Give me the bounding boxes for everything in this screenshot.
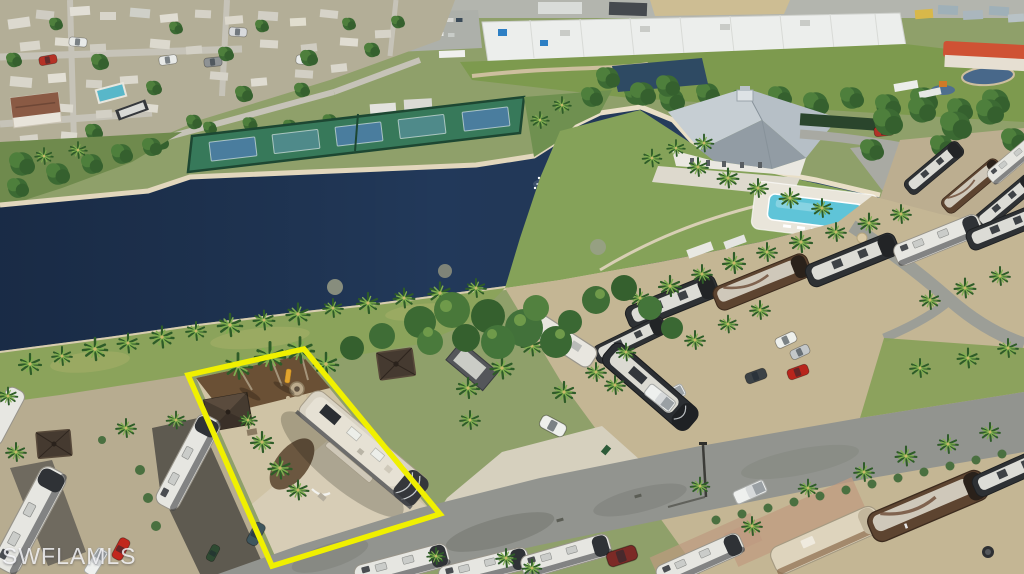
house xyxy=(989,6,1010,16)
car xyxy=(229,27,248,37)
car xyxy=(69,37,88,48)
mobile-home xyxy=(290,18,306,27)
mobile-home xyxy=(100,12,116,20)
site-gazebo xyxy=(36,430,72,459)
mobile-home xyxy=(186,45,203,54)
mobile-home xyxy=(150,39,171,50)
mobile-home xyxy=(70,6,91,16)
patio-chair xyxy=(286,396,290,400)
bush xyxy=(151,521,161,531)
orange-equipment xyxy=(939,81,947,87)
palm-tree xyxy=(460,411,480,429)
mls-watermark: SWFLAMLS xyxy=(2,543,137,570)
brown-roof-house xyxy=(10,92,61,128)
bare-tree xyxy=(590,239,606,255)
bush xyxy=(98,436,106,444)
dirt-field xyxy=(650,0,790,16)
mobile-home xyxy=(260,40,278,49)
mobile-home xyxy=(86,80,102,89)
car xyxy=(448,33,455,37)
yellow-house xyxy=(915,9,934,20)
bush xyxy=(143,493,153,503)
mobile-home xyxy=(210,71,229,81)
mobile-home xyxy=(10,76,33,88)
bush xyxy=(135,465,145,475)
dark-roof-building xyxy=(609,2,647,16)
mobile-home xyxy=(331,63,348,73)
white-jeep xyxy=(538,414,568,439)
car xyxy=(204,57,223,68)
mobile-home xyxy=(340,37,359,46)
mobile-home xyxy=(48,73,67,84)
box-truck xyxy=(439,50,465,58)
house xyxy=(938,5,958,15)
mobile-home xyxy=(295,69,314,78)
fire-pit-center xyxy=(294,386,300,392)
mobile-home xyxy=(225,15,244,25)
car xyxy=(456,18,463,22)
cupola xyxy=(737,90,753,101)
pavilion xyxy=(376,348,415,380)
bare-tree xyxy=(438,264,452,278)
white-building xyxy=(538,2,582,14)
cupola-cap xyxy=(740,86,750,91)
mobile-home xyxy=(96,109,113,118)
red-roof-building xyxy=(942,41,1024,71)
bare-tree xyxy=(327,279,343,295)
house xyxy=(963,10,983,20)
aerial-photo-canvas xyxy=(0,0,1024,574)
aerial-photo: SWFLAMLS xyxy=(0,0,1024,574)
blue-sign xyxy=(540,40,548,46)
mobile-home xyxy=(130,8,151,19)
mobile-home xyxy=(195,10,211,19)
mobile-home xyxy=(90,44,106,53)
street-lamp-head xyxy=(699,442,707,445)
mobile-home xyxy=(258,11,279,21)
house xyxy=(1008,13,1024,22)
mobile-home xyxy=(251,77,268,86)
blue-sign xyxy=(498,29,507,36)
satellite-dish-center xyxy=(985,549,991,555)
mobile-home xyxy=(375,30,391,39)
